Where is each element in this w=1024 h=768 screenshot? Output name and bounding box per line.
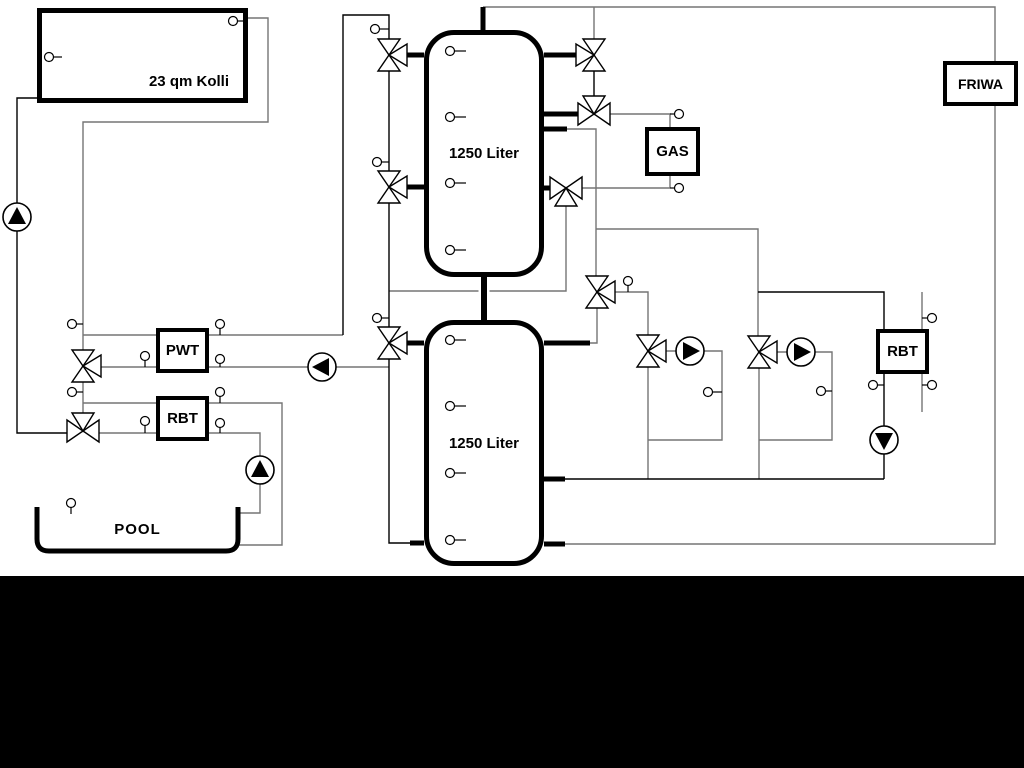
sensor-valve1-icon (371, 25, 390, 34)
pump-pwt-icon (308, 353, 336, 381)
sensor-rbt2-right-top-icon (922, 314, 937, 323)
pool-label-wrap: POOL (37, 507, 238, 551)
friwa-label: FRIWA (958, 76, 1003, 92)
rbt-right-box: RBT (876, 329, 929, 374)
sensor-rbt2-left-icon (869, 381, 885, 390)
pwt-label: PWT (166, 342, 199, 359)
bottom-black-bar (0, 576, 1024, 768)
sensor-pwt-out-bottom-icon (216, 355, 225, 368)
sensor-rbt1-in-icon (141, 417, 150, 434)
buffer-tank-upper: 1250 Liter (424, 30, 544, 277)
pool-label: POOL (114, 521, 161, 538)
valve-tank1-left-top-icon (378, 39, 407, 71)
valve-pwt-supply-icon (72, 350, 101, 382)
pump-solar-icon (3, 203, 31, 231)
sensor-pwt-in-icon (141, 352, 150, 368)
rbt2-feed-pipe (565, 292, 884, 479)
valve-tank2-left-icon (378, 327, 407, 359)
sensor-rbt1-out-top-icon (216, 388, 225, 404)
sensor-valve2-icon (373, 158, 390, 167)
sensor-gas-return-icon (670, 184, 684, 193)
valve-tank1-right-top-icon (576, 39, 605, 71)
valve-heating-group1-icon (637, 335, 666, 367)
heating-group2-pipes (759, 352, 832, 479)
pwt-heat-exchanger-box: PWT (156, 328, 209, 373)
collector-supply-pipe (17, 98, 67, 433)
sensor-riser-bottom-icon (68, 388, 84, 397)
buffer-tank-lower: 1250 Liter (424, 320, 544, 566)
pump-group2-icon (787, 338, 815, 366)
valve-gas-return-icon (550, 177, 582, 206)
solar-collector-box: 23 qm Kolli (37, 8, 248, 103)
hydraulic-schematic: 23 qm Kolli 1250 Liter 1250 Liter GAS FR… (0, 0, 1024, 768)
sensor-valve3-icon (373, 314, 390, 323)
valve-tank1-left-bottom-icon (378, 171, 407, 203)
rbt-left-box: RBT (156, 396, 209, 441)
sensor-pwt-out-top-icon (216, 320, 225, 336)
valve-rbt1-supply-icon (67, 413, 99, 442)
gas-boiler-box: GAS (645, 127, 700, 176)
upper-tank-label: 1250 Liter (449, 145, 519, 162)
top-header-pipe (483, 7, 995, 544)
valve-heating-group2-icon (748, 336, 777, 368)
valve-gas-flow-icon (578, 96, 610, 125)
sensor-rbt1-out-bottom-icon (216, 419, 225, 434)
pump-pool-icon (246, 456, 274, 484)
sensor-gas-flow-icon (670, 110, 684, 119)
friwa-box: FRIWA (943, 61, 1018, 106)
sensor-riser-top-icon (68, 320, 84, 329)
pump-group1-icon (676, 337, 704, 365)
heating-group1-pipes (648, 351, 722, 479)
sensor-distribution-icon (624, 277, 633, 293)
rbt-right-label: RBT (887, 343, 918, 360)
sensor-group1-icon (704, 388, 723, 397)
tank-left-valve-chain (343, 15, 410, 543)
sensor-group2-icon (817, 387, 833, 396)
valve-distribution-icon (586, 276, 615, 308)
rbt-left-label: RBT (167, 410, 198, 427)
sensor-rbt2-right-bottom-icon (922, 381, 937, 390)
collector-label: 23 qm Kolli (149, 73, 229, 90)
gas-label: GAS (656, 143, 689, 160)
pump-rbt2-icon (870, 426, 898, 454)
lower-tank-label: 1250 Liter (449, 435, 519, 452)
